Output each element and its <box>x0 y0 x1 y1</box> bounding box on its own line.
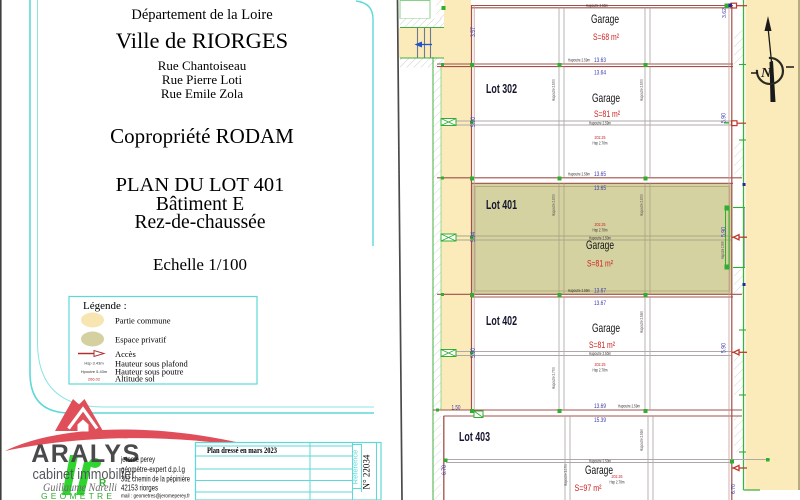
svg-text:Plan dressé en mars 2023: Plan dressé en mars 2023 <box>207 445 277 455</box>
svg-text:13.63: 13.63 <box>594 57 606 64</box>
svg-text:Hapoutre 2.59m: Hapoutre 2.59m <box>589 120 611 125</box>
svg-text:5.90: 5.90 <box>721 343 728 353</box>
svg-text:Ville de RIORGES: Ville de RIORGES <box>116 28 288 53</box>
svg-text:Légende :: Légende : <box>83 300 127 312</box>
svg-text:202.25: 202.25 <box>595 135 607 140</box>
svg-text:S=68 m²: S=68 m² <box>593 32 619 43</box>
svg-text:Garage: Garage <box>592 91 620 105</box>
svg-text:5.90: 5.90 <box>721 113 728 123</box>
svg-text:géomètre-expert d.p.l.g: géomètre-expert d.p.l.g <box>121 464 185 474</box>
svg-text:GEOMETRE: GEOMETRE <box>41 491 115 500</box>
svg-text:Hsp 2.78m: Hsp 2.78m <box>593 228 608 233</box>
svg-text:Hapoutre 2.59m: Hapoutre 2.59m <box>618 404 640 409</box>
svg-text:S=81 m²: S=81 m² <box>594 109 620 120</box>
svg-text:1.50: 1.50 <box>452 405 461 412</box>
svg-text:6.70: 6.70 <box>731 484 737 494</box>
svg-text:202.26: 202.26 <box>612 474 624 479</box>
svg-text:Hapoutre 2.59m: Hapoutre 2.59m <box>639 311 644 333</box>
svg-text:Altitude sol: Altitude sol <box>115 374 156 384</box>
svg-text:Hapoutre 2.59m: Hapoutre 2.59m <box>568 288 590 293</box>
svg-text:S=97 m²: S=97 m² <box>575 483 602 494</box>
svg-text:13.67: 13.67 <box>594 300 606 307</box>
svg-text:Département de la Loire: Département de la Loire <box>131 7 272 23</box>
svg-text:Hapoutre 2.50m: Hapoutre 2.50m <box>586 3 608 8</box>
svg-text:Rue Pierre Loti: Rue Pierre Loti <box>162 72 243 87</box>
svg-text:Hsp 3.43m: Hsp 3.43m <box>84 361 104 366</box>
svg-text:202.25: 202.25 <box>595 362 607 367</box>
svg-text:Hapoutre 2.06m: Hapoutre 2.06m <box>720 241 725 259</box>
svg-text:Garage: Garage <box>591 12 619 26</box>
svg-text:Lot 401: Lot 401 <box>486 197 517 212</box>
svg-text:Hapoutre 2.59m: Hapoutre 2.59m <box>568 58 590 63</box>
svg-text:Garage: Garage <box>592 321 620 335</box>
svg-text:Rez-de-chaussée: Rez-de-chaussée <box>134 212 265 233</box>
svg-text:6.70: 6.70 <box>441 465 448 475</box>
svg-text:PLAN DU LOT 401: PLAN DU LOT 401 <box>116 174 285 196</box>
svg-text:Hapoutre 2.50m: Hapoutre 2.50m <box>589 235 611 240</box>
svg-text:Hsp 2.78m: Hsp 2.78m <box>593 368 608 373</box>
svg-text:Hapoutre 2.58m: Hapoutre 2.58m <box>568 172 590 177</box>
svg-text:Hapoutre 2.57m: Hapoutre 2.57m <box>551 79 556 101</box>
svg-text:Rue Emile Zola: Rue Emile Zola <box>161 86 244 101</box>
svg-text:Hapoutre 2.57m: Hapoutre 2.57m <box>639 79 644 101</box>
svg-text:Lot 402: Lot 402 <box>486 313 517 328</box>
svg-text:Hapoutre 2.50m: Hapoutre 2.50m <box>589 351 611 356</box>
svg-text:13.67: 13.67 <box>594 288 606 295</box>
svg-text:Hapoutre 2.59m: Hapoutre 2.59m <box>639 429 644 451</box>
svg-text:13.65: 13.65 <box>594 171 606 178</box>
svg-text:Partie commune: Partie commune <box>115 316 171 326</box>
svg-text:Hapoutre 2.50m: Hapoutre 2.50m <box>589 458 611 463</box>
svg-text:13.69: 13.69 <box>594 403 606 410</box>
svg-text:jerome perey: jerome perey <box>120 454 155 464</box>
svg-text:202.25: 202.25 <box>595 222 607 227</box>
svg-text:5.90: 5.90 <box>470 348 477 358</box>
svg-text:15.39: 15.39 <box>594 417 606 424</box>
svg-text:Lot 403: Lot 403 <box>459 429 490 444</box>
svg-text:13.64: 13.64 <box>594 70 606 77</box>
svg-text:266.02: 266.02 <box>88 377 101 382</box>
svg-text:3.62: 3.62 <box>722 8 728 18</box>
svg-text:Accès: Accès <box>115 349 136 359</box>
svg-text:13.65: 13.65 <box>594 185 606 192</box>
svg-text:S=81 m²: S=81 m² <box>589 340 615 351</box>
svg-text:5.94: 5.94 <box>470 232 477 242</box>
svg-text:Hapoutre 3.17m: Hapoutre 3.17m <box>563 464 568 486</box>
svg-text:Hapoutre 2.77m: Hapoutre 2.77m <box>551 367 556 389</box>
svg-text:Hpoutre 5.43m: Hpoutre 5.43m <box>81 369 108 374</box>
svg-text:Hapoutre 2.57m: Hapoutre 2.57m <box>551 194 556 216</box>
svg-text:5.90: 5.90 <box>721 227 728 237</box>
svg-text:Hapoutre 2.57m: Hapoutre 2.57m <box>639 194 644 216</box>
svg-text:Référence: Référence <box>351 450 360 485</box>
svg-text:S=81 m²: S=81 m² <box>587 259 613 270</box>
svg-text:Espace privatif: Espace privatif <box>115 335 166 345</box>
svg-text:N: N <box>760 66 772 81</box>
svg-text:Lot 302: Lot 302 <box>486 81 517 96</box>
svg-text:5.90: 5.90 <box>470 117 477 127</box>
svg-text:Garage: Garage <box>585 463 613 477</box>
svg-text:Hsp 2.78m: Hsp 2.78m <box>593 141 608 146</box>
svg-text:Echelle 1/100: Echelle 1/100 <box>153 255 247 274</box>
svg-text:Hsp 2.78m: Hsp 2.78m <box>610 480 625 485</box>
svg-text:3.57: 3.57 <box>470 27 477 37</box>
svg-text:Copropriété RODAM: Copropriété RODAM <box>110 124 294 148</box>
svg-text:Rue Chantoiseau: Rue Chantoiseau <box>158 58 247 73</box>
svg-text:mail : geometres@jeromeperey.f: mail : geometres@jeromeperey.fr <box>121 494 190 500</box>
svg-text:42153 riorges: 42153 riorges <box>121 483 158 493</box>
svg-text:N° 22034: N° 22034 <box>362 454 372 489</box>
